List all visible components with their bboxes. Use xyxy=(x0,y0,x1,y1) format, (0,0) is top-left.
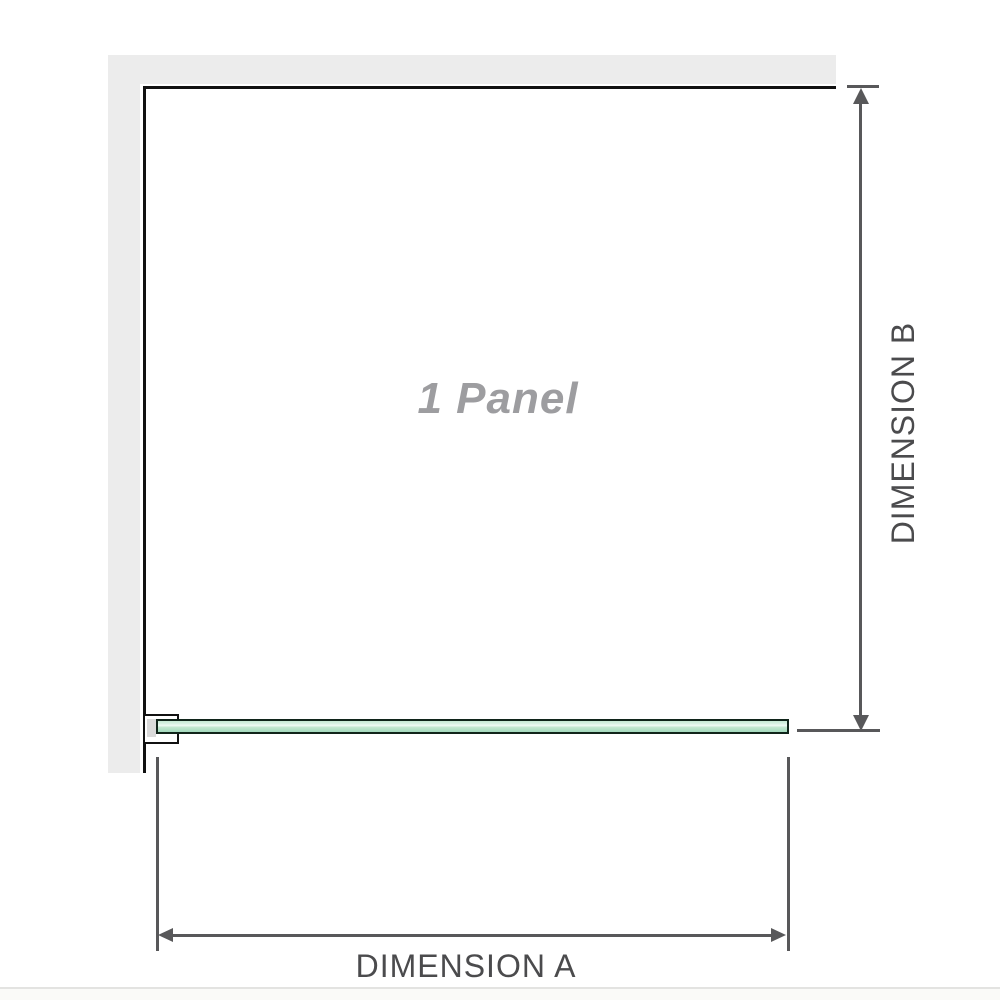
bottom-strip xyxy=(0,989,1000,1000)
glass-panel-bar xyxy=(156,719,789,734)
arrow-up-icon xyxy=(853,88,869,104)
wall-top-band xyxy=(108,55,836,84)
panel-count-label: 1 Panel xyxy=(348,374,648,424)
arrow-down-icon xyxy=(853,715,869,731)
panel-outline-top-edge xyxy=(143,86,836,89)
diagram-canvas: 1 Panel DIMENSION B DIMENSION A xyxy=(0,0,1000,1000)
dimension-a-left-extension xyxy=(156,757,159,951)
dimension-a-line xyxy=(170,934,774,937)
dimension-b-label: DIMENSION B xyxy=(883,283,923,583)
arrow-left-icon xyxy=(158,928,173,942)
wall-left-band xyxy=(108,55,140,773)
arrow-right-icon xyxy=(771,928,786,942)
dimension-a-label: DIMENSION A xyxy=(316,948,616,985)
bracket-shim xyxy=(147,719,156,737)
panel-outline-left-edge xyxy=(143,86,146,773)
dimension-b-line xyxy=(859,100,862,718)
dimension-a-right-extension xyxy=(787,757,790,951)
